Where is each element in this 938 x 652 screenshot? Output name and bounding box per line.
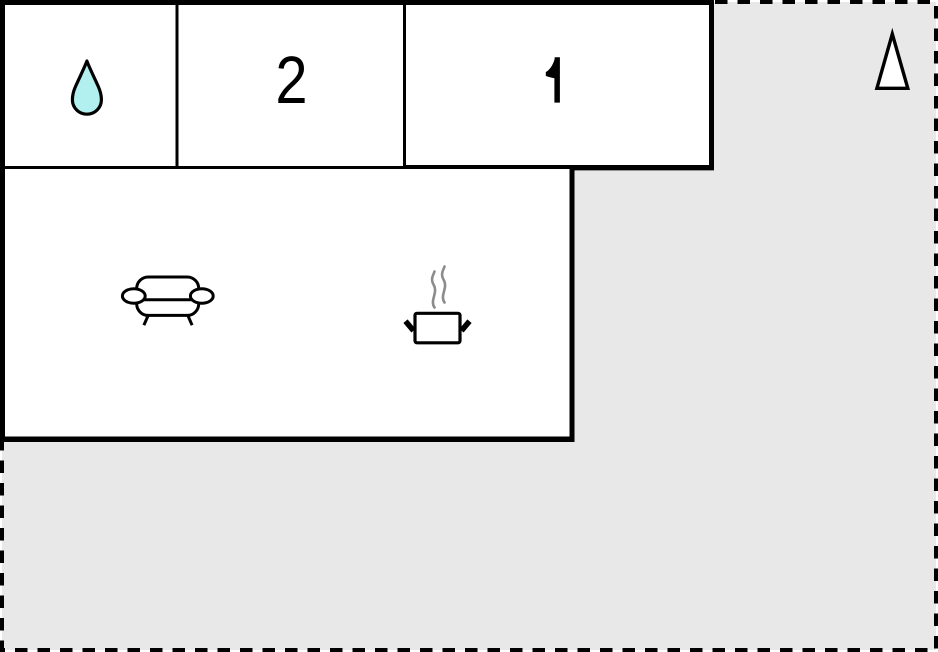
svg-text:2: 2 (275, 44, 307, 118)
